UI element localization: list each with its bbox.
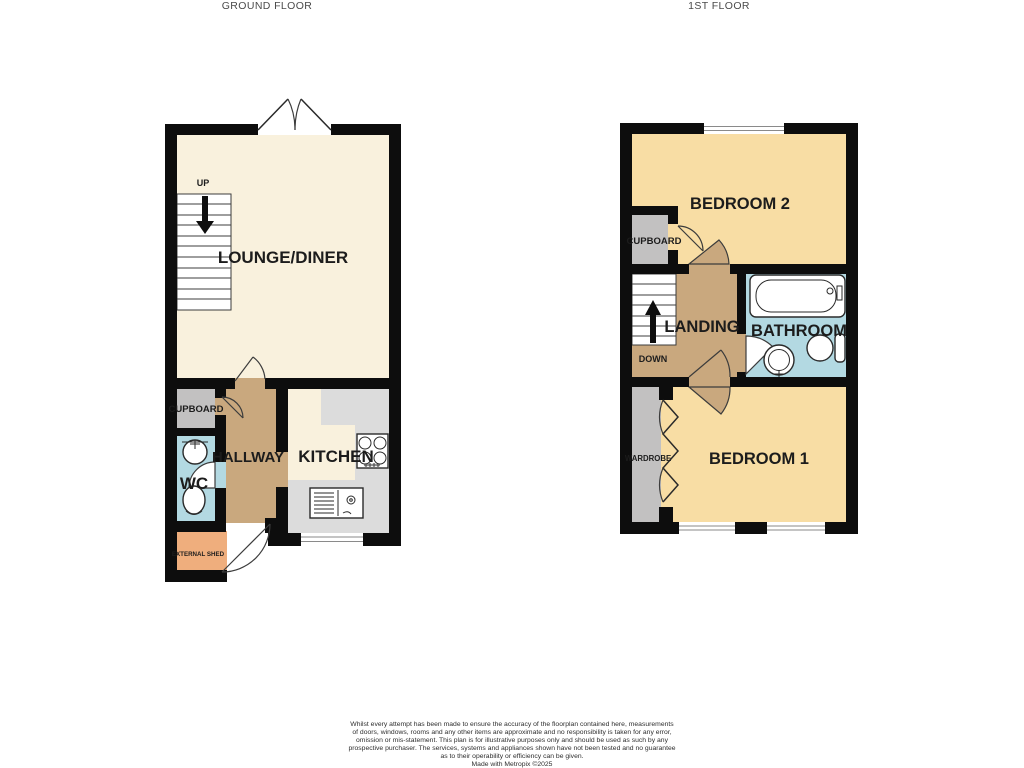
bedroom2-label: BEDROOM 2 — [690, 195, 790, 213]
ground-floor-plan: LOUNGE/DINER UP CUPBOARD WC HALLWAY KITC… — [165, 99, 401, 582]
down-label: DOWN — [639, 354, 668, 364]
french-doors — [258, 99, 331, 135]
kitchen-sink — [310, 488, 363, 518]
wc-label: WC — [180, 474, 208, 493]
bedroom1-label: BEDROOM 1 — [709, 450, 809, 468]
bathroom-label: BATHROOM — [751, 322, 847, 340]
disclaimer: Whilst every attempt has been made to en… — [302, 721, 722, 768]
floorplan-page: GROUND FLOOR 1ST FLOOR — [0, 0, 1024, 768]
wardrobe-label: WARDROBE — [625, 454, 671, 463]
disclaimer-line: of doors, windows, rooms and any other i… — [302, 729, 722, 737]
kitchen-window — [301, 533, 363, 546]
bathroom-doorway — [737, 334, 746, 372]
disclaimer-line: omission or mis-statement. This plan is … — [302, 737, 722, 745]
bathtub — [750, 275, 845, 317]
bedroom1-doorway — [689, 377, 730, 387]
first-floor-plan: BEDROOM 2 CUPBOARD LANDING DOWN BATHROOM… — [620, 123, 858, 534]
ground-cupboard-label: CUPBOARD — [169, 404, 224, 415]
lounge-doorway — [235, 378, 265, 389]
disclaimer-credit: Made with Metropix ©2025 — [302, 761, 722, 768]
first-cupboard-label: CUPBOARD — [627, 236, 682, 247]
disclaimer-line: Whilst every attempt has been made to en… — [302, 721, 722, 729]
kitchen-counter-top — [321, 389, 389, 425]
wc-sink — [182, 440, 208, 464]
kitchen-label: KITCHEN — [298, 447, 374, 466]
disclaimer-line: as to their operability or efficiency ca… — [302, 753, 722, 761]
front-door-swing — [222, 524, 270, 572]
bedroom2-doorway — [689, 264, 730, 274]
bedroom1-window-left — [679, 522, 735, 534]
hallway-label: HALLWAY — [212, 449, 284, 466]
lounge-diner-label: LOUNGE/DINER — [218, 248, 348, 267]
floorplan-canvas: LOUNGE/DINER UP CUPBOARD WC HALLWAY KITC… — [0, 0, 1024, 768]
disclaimer-line: prospective purchaser. The services, sys… — [302, 745, 722, 753]
external-shed-label: EXTERNAL SHED — [172, 551, 225, 558]
bedroom2-window — [704, 123, 784, 134]
landing-label: LANDING — [664, 318, 739, 336]
up-label: UP — [197, 178, 210, 188]
bedroom1-window-right — [767, 522, 825, 534]
